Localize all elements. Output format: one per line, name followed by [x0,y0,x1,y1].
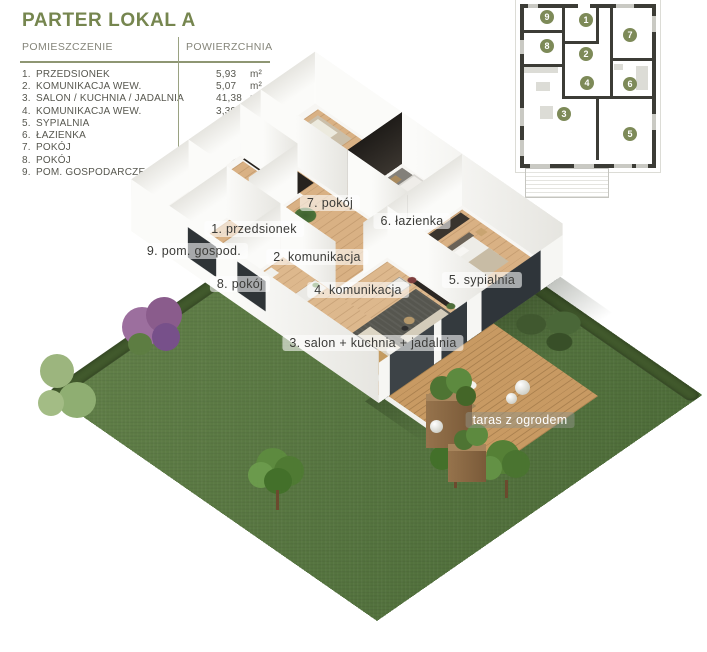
mini-floorplan-walls: 1 2 3 4 5 6 7 8 9 [520,4,656,168]
window [528,4,538,8]
wall [562,64,565,98]
light-bushes [38,348,98,420]
garden-tree [248,448,308,510]
unit-circle-2: 2 [579,47,593,61]
label-room-8: 8. pokój [210,276,270,292]
wall [562,8,565,66]
label-corridor-2: 2. komunikacja [266,249,368,265]
lilac-bush [122,293,186,355]
label-livingroom: 3. salon + kuchnia + jadalnia [282,335,463,351]
table-header: POMIESZCZENIE POWIERZCHNIA [20,41,270,57]
window [616,4,634,8]
wall [610,8,613,60]
ball-lamp [515,380,530,395]
header-underline [20,61,270,63]
wood-planter [448,444,486,482]
kitchen-counter [524,67,558,73]
unit-circle-3: 3 [557,107,571,121]
garden-tree [478,440,534,498]
wall [610,58,652,61]
table-row: 3.SALON / KUCHNIA / JADALNIA41,38m² [20,93,270,105]
table-row: 1.PRZEDSIONEK5,93m² [20,68,270,80]
unit-circle-5: 5 [623,127,637,141]
floorplan-sheet: PARTER LOKAL A POMIESZCZENIE POWIERZCHNI… [0,0,707,652]
window [652,16,656,32]
wall [596,8,599,44]
bath-fixture [614,64,623,70]
ball-lamp [430,420,443,433]
unit-circle-9: 9 [540,10,554,24]
column-header-room: POMIESZCZENIE [22,41,113,53]
ball-lamp [506,393,517,404]
kitchen-island [536,82,550,91]
label-room-7: 7. pokój [300,195,360,211]
window [520,108,524,126]
label-bedroom: 5. sypialnia [442,272,522,288]
window [636,164,648,168]
label-utility: 9. pom. gospod. [140,243,248,259]
dining-table [540,106,553,119]
wall [562,41,599,44]
bathtub [636,66,648,90]
entry-door [578,4,590,8]
unit-circle-4: 4 [580,76,594,90]
wall [562,96,652,99]
unit-circle-8: 8 [540,39,554,53]
window [520,40,524,54]
wall [610,58,613,98]
column-header-area: POWIERZCHNIA [186,41,272,53]
page-title: PARTER LOKAL A [22,10,270,32]
mini-floorplan: 1 2 3 4 5 6 7 8 9 [520,4,656,168]
window [520,140,524,156]
unit-circle-6: 6 [623,77,637,91]
label-vestibule: 1. przedsionek [204,221,304,237]
unit-circle-7: 7 [623,28,637,42]
window [614,164,632,168]
wall [524,30,562,33]
window [652,114,656,130]
label-corridor-4: 4. komunikacja [307,282,409,298]
unit-circle-1: 1 [579,13,593,27]
table-row: 2.KOMUNIKACJA WEW.5,07m² [20,80,270,92]
label-bathroom: 6. łazienka [373,213,450,229]
mini-terrace [525,168,609,198]
label-terrace: taras z ogrodem [466,412,575,428]
wall [596,99,599,160]
